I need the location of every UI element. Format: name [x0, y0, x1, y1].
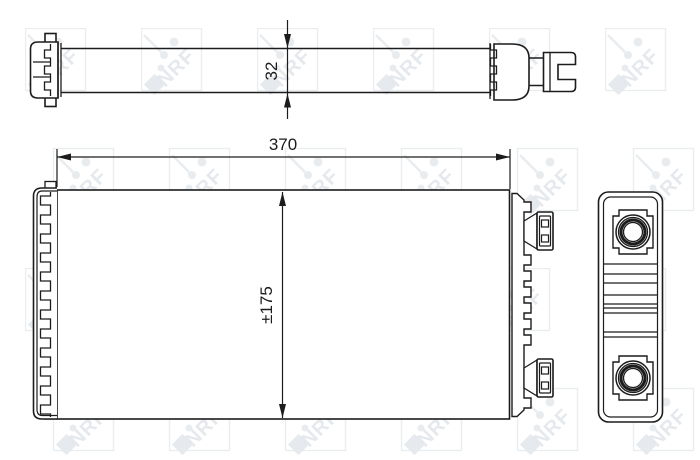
- endcap-tab: [45, 34, 56, 43]
- dimension-label-width: 370: [269, 135, 297, 154]
- right-tank: [494, 44, 529, 100]
- front-view: ±175: [34, 182, 554, 420]
- endcap-tab: [45, 98, 56, 107]
- top-port: [613, 210, 653, 254]
- dimension-label-height: ±175: [257, 286, 276, 324]
- upper-pipe-connector: [524, 212, 553, 250]
- bottom-port: [613, 356, 653, 400]
- side-port-view: [599, 192, 663, 422]
- lower-pipe-connector: [524, 359, 553, 397]
- dimension-label-thickness: 32: [262, 62, 281, 81]
- heater-core-technical-drawing: NRF NRF: [0, 0, 700, 460]
- core-face: [57, 190, 510, 419]
- technical-drawing-page: NRF NRF: [0, 0, 700, 460]
